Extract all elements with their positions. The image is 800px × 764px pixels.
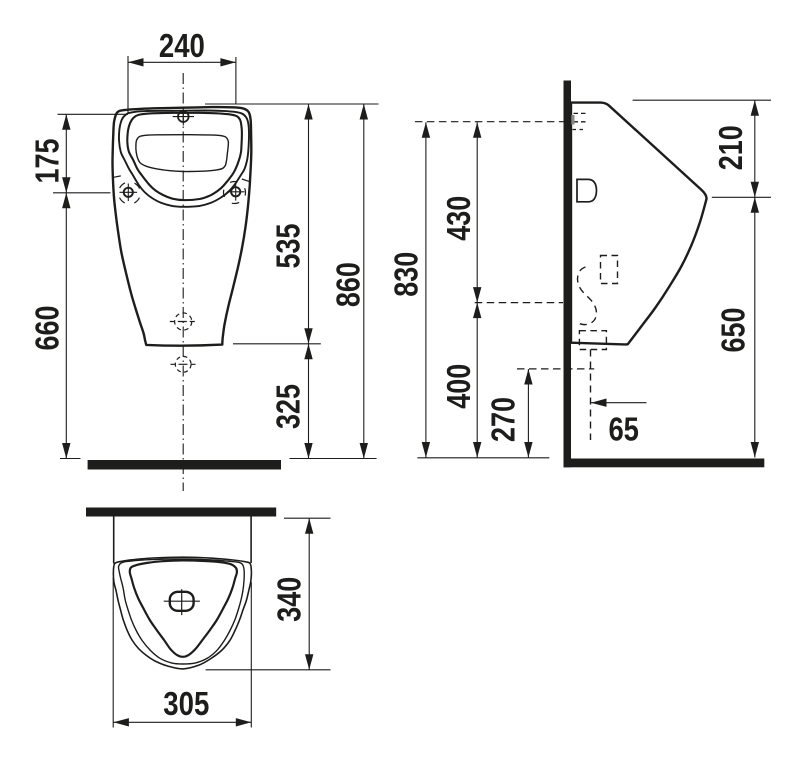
svg-text:340: 340 bbox=[270, 577, 307, 622]
svg-text:305: 305 bbox=[163, 685, 209, 722]
svg-text:660: 660 bbox=[28, 306, 65, 351]
svg-text:65: 65 bbox=[608, 410, 639, 447]
svg-text:430: 430 bbox=[440, 196, 477, 241]
svg-text:650: 650 bbox=[714, 308, 751, 353]
svg-text:175: 175 bbox=[29, 139, 66, 184]
svg-text:830: 830 bbox=[387, 252, 424, 297]
svg-text:325: 325 bbox=[269, 384, 306, 429]
svg-text:400: 400 bbox=[440, 364, 477, 409]
svg-text:210: 210 bbox=[712, 125, 749, 170]
svg-text:860: 860 bbox=[329, 262, 366, 307]
svg-text:240: 240 bbox=[159, 27, 205, 64]
svg-text:535: 535 bbox=[269, 224, 306, 269]
svg-text:270: 270 bbox=[485, 397, 522, 442]
